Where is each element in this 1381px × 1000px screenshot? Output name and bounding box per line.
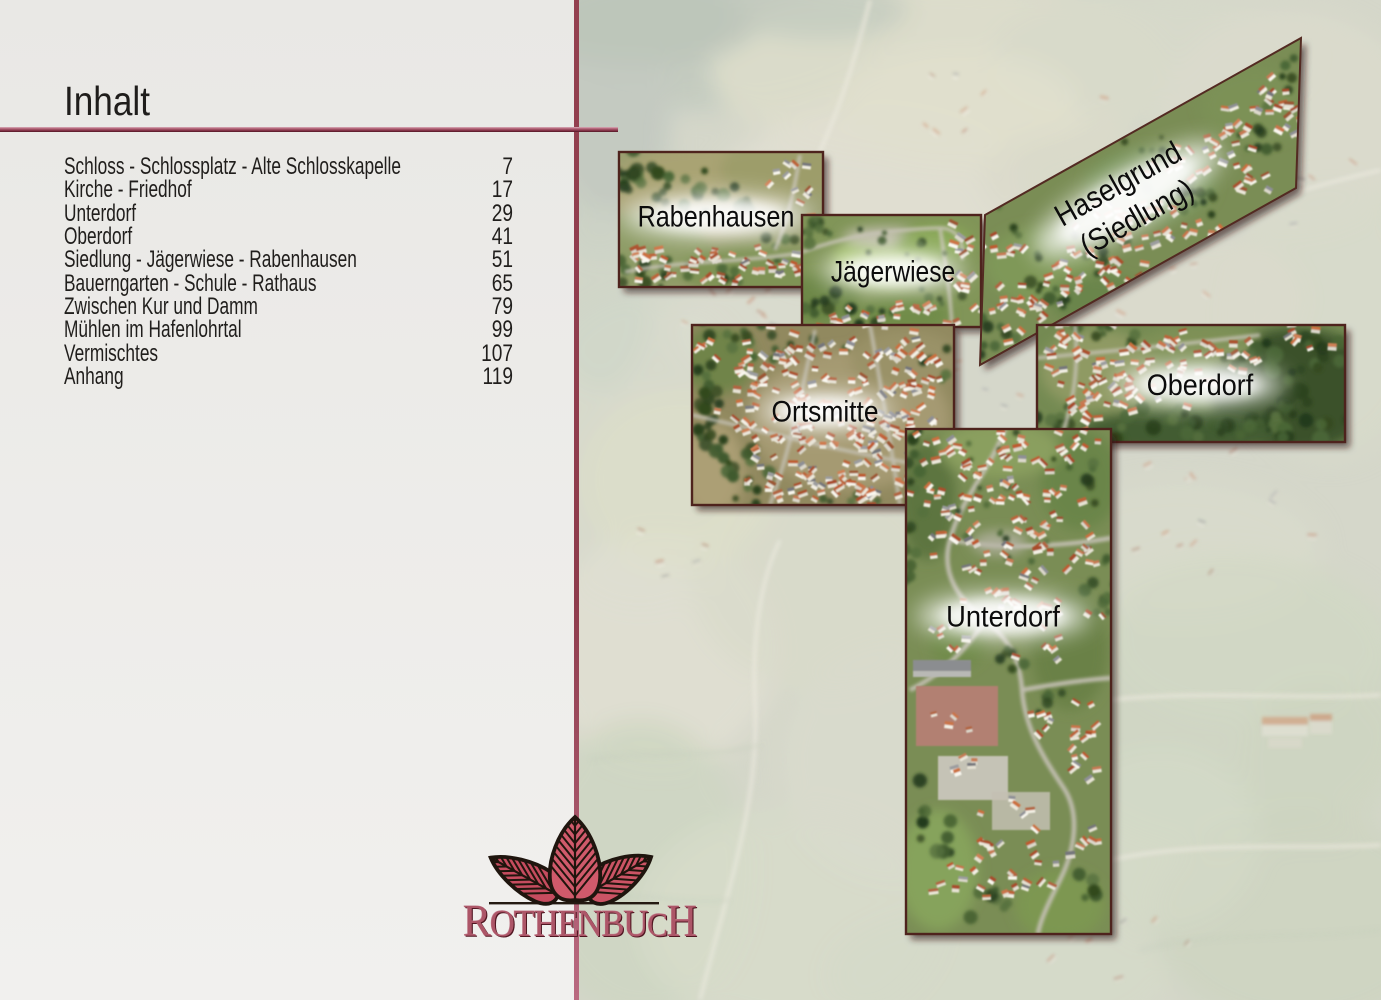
svg-text:ROTHENBUCH: ROTHENBUCH xyxy=(463,895,696,946)
svg-text:Oberdorf: Oberdorf xyxy=(1147,369,1254,403)
svg-text:Jägerwiese: Jägerwiese xyxy=(831,254,955,288)
svg-text:Ortsmitte: Ortsmitte xyxy=(771,394,878,428)
svg-text:Unterdorf: Unterdorf xyxy=(946,601,1061,634)
svg-text:Rabenhausen: Rabenhausen xyxy=(638,200,795,234)
